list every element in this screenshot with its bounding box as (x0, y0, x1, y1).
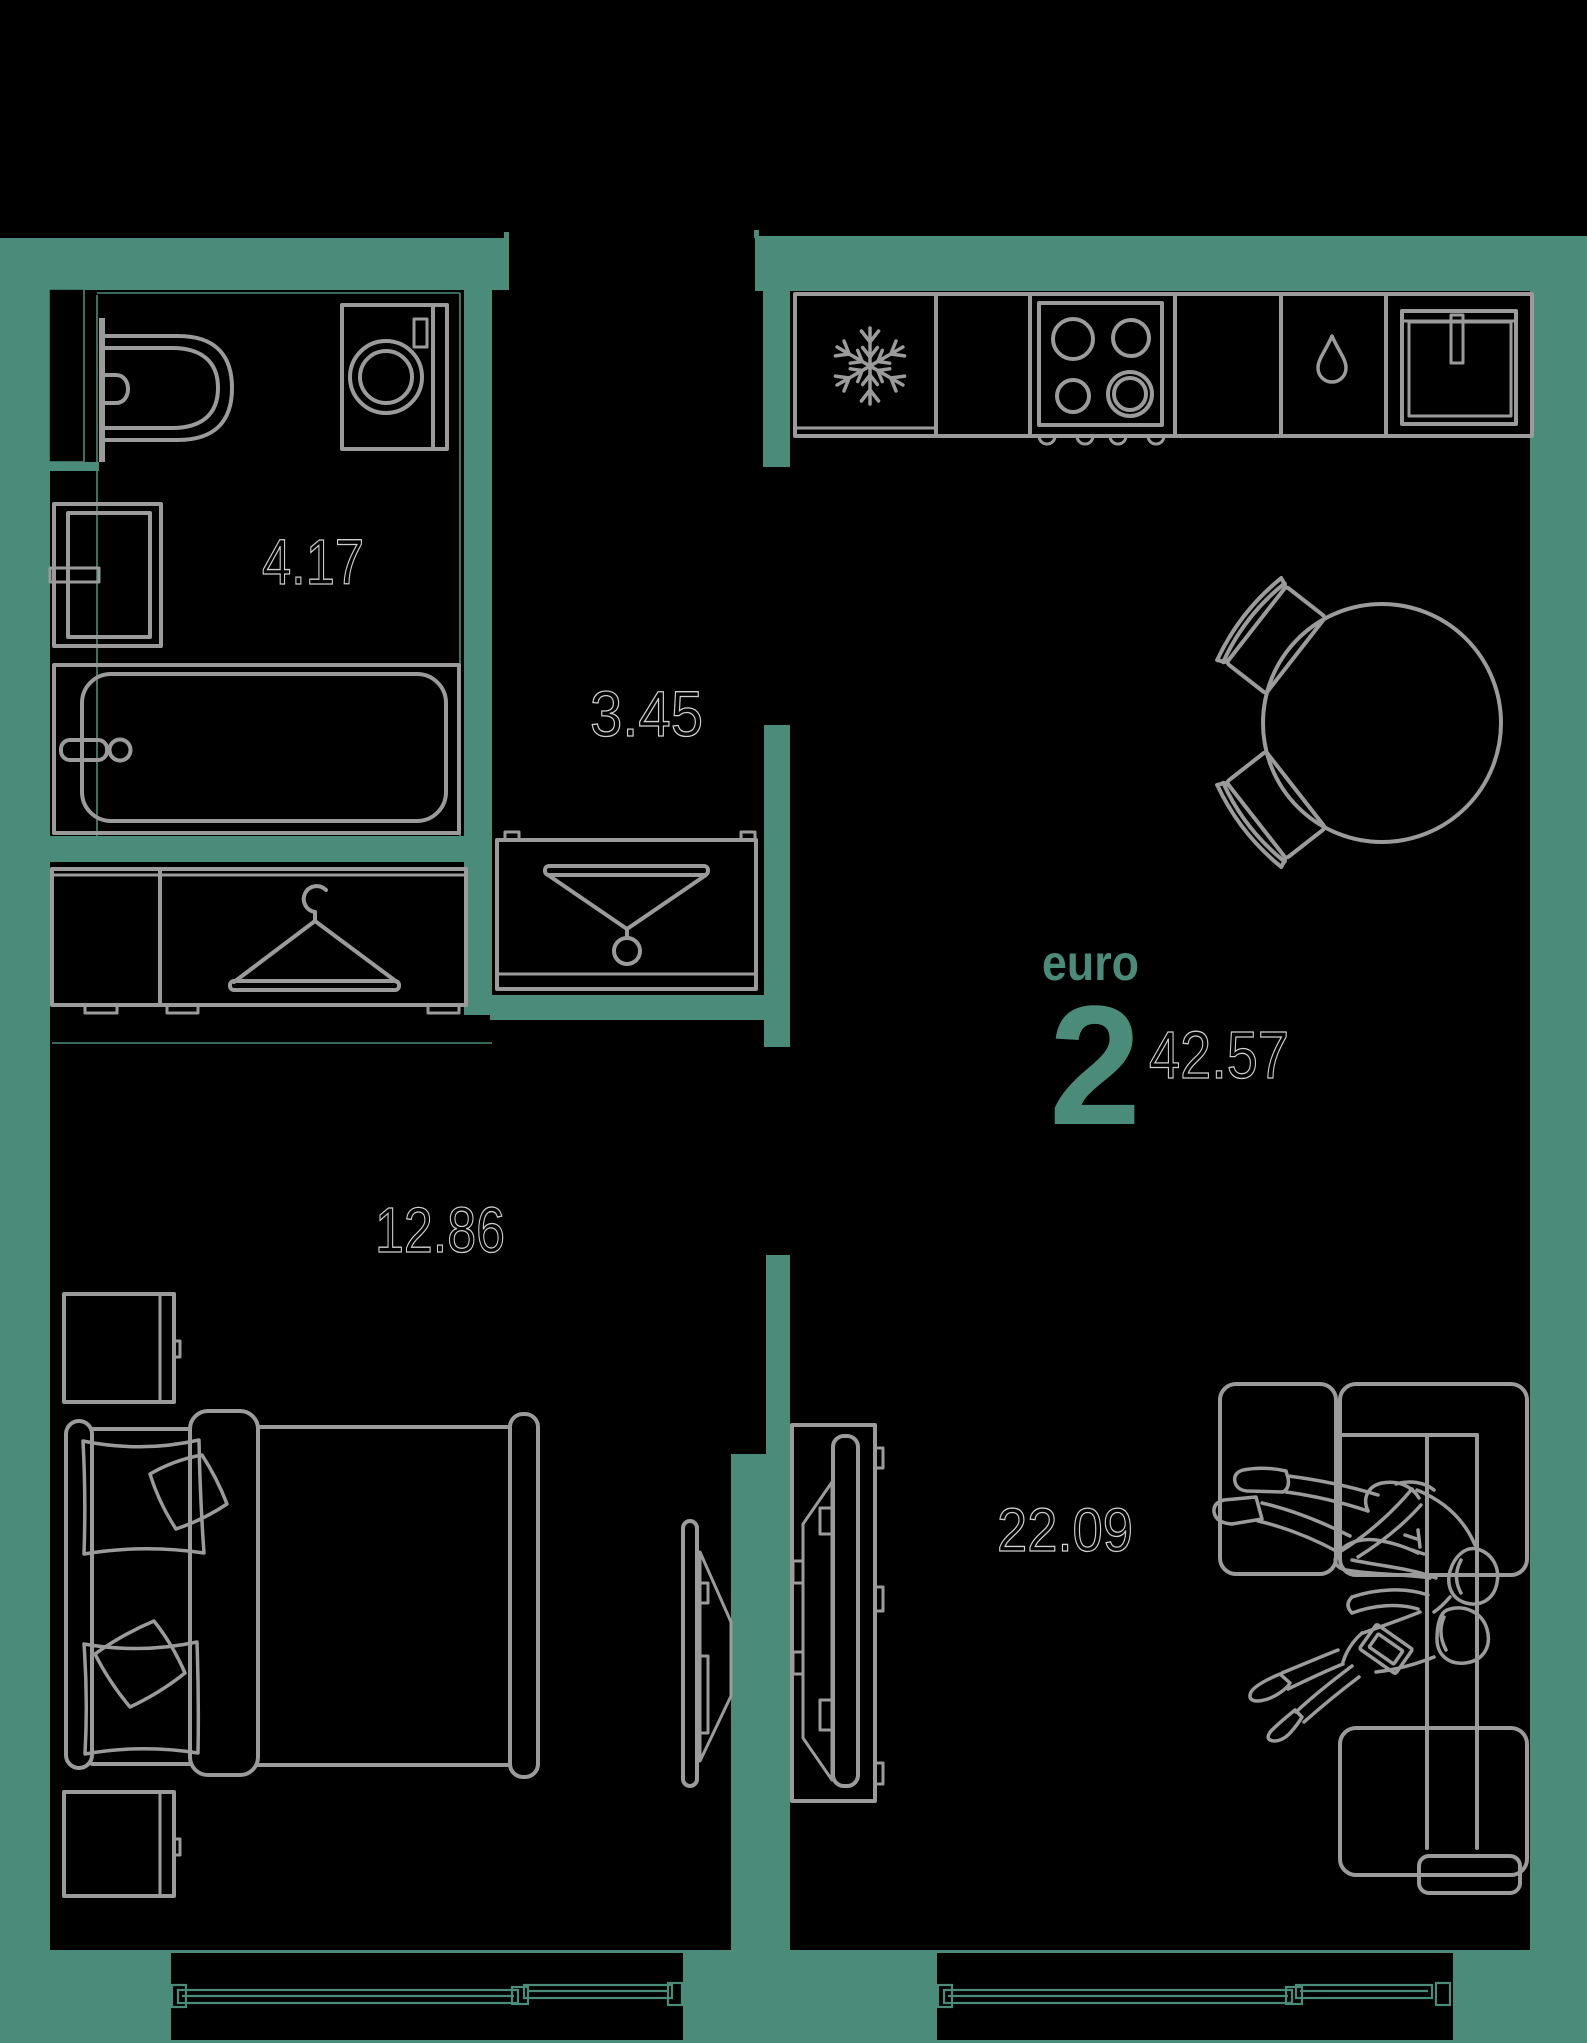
svg-text:2: 2 (1049, 971, 1141, 1161)
svg-text:42.57: 42.57 (1149, 1018, 1289, 1093)
svg-text:3.45: 3.45 (590, 678, 703, 750)
svg-text:4.17: 4.17 (262, 526, 364, 598)
svg-text:12.86: 12.86 (375, 1194, 505, 1266)
svg-text:22.09: 22.09 (997, 1496, 1133, 1564)
